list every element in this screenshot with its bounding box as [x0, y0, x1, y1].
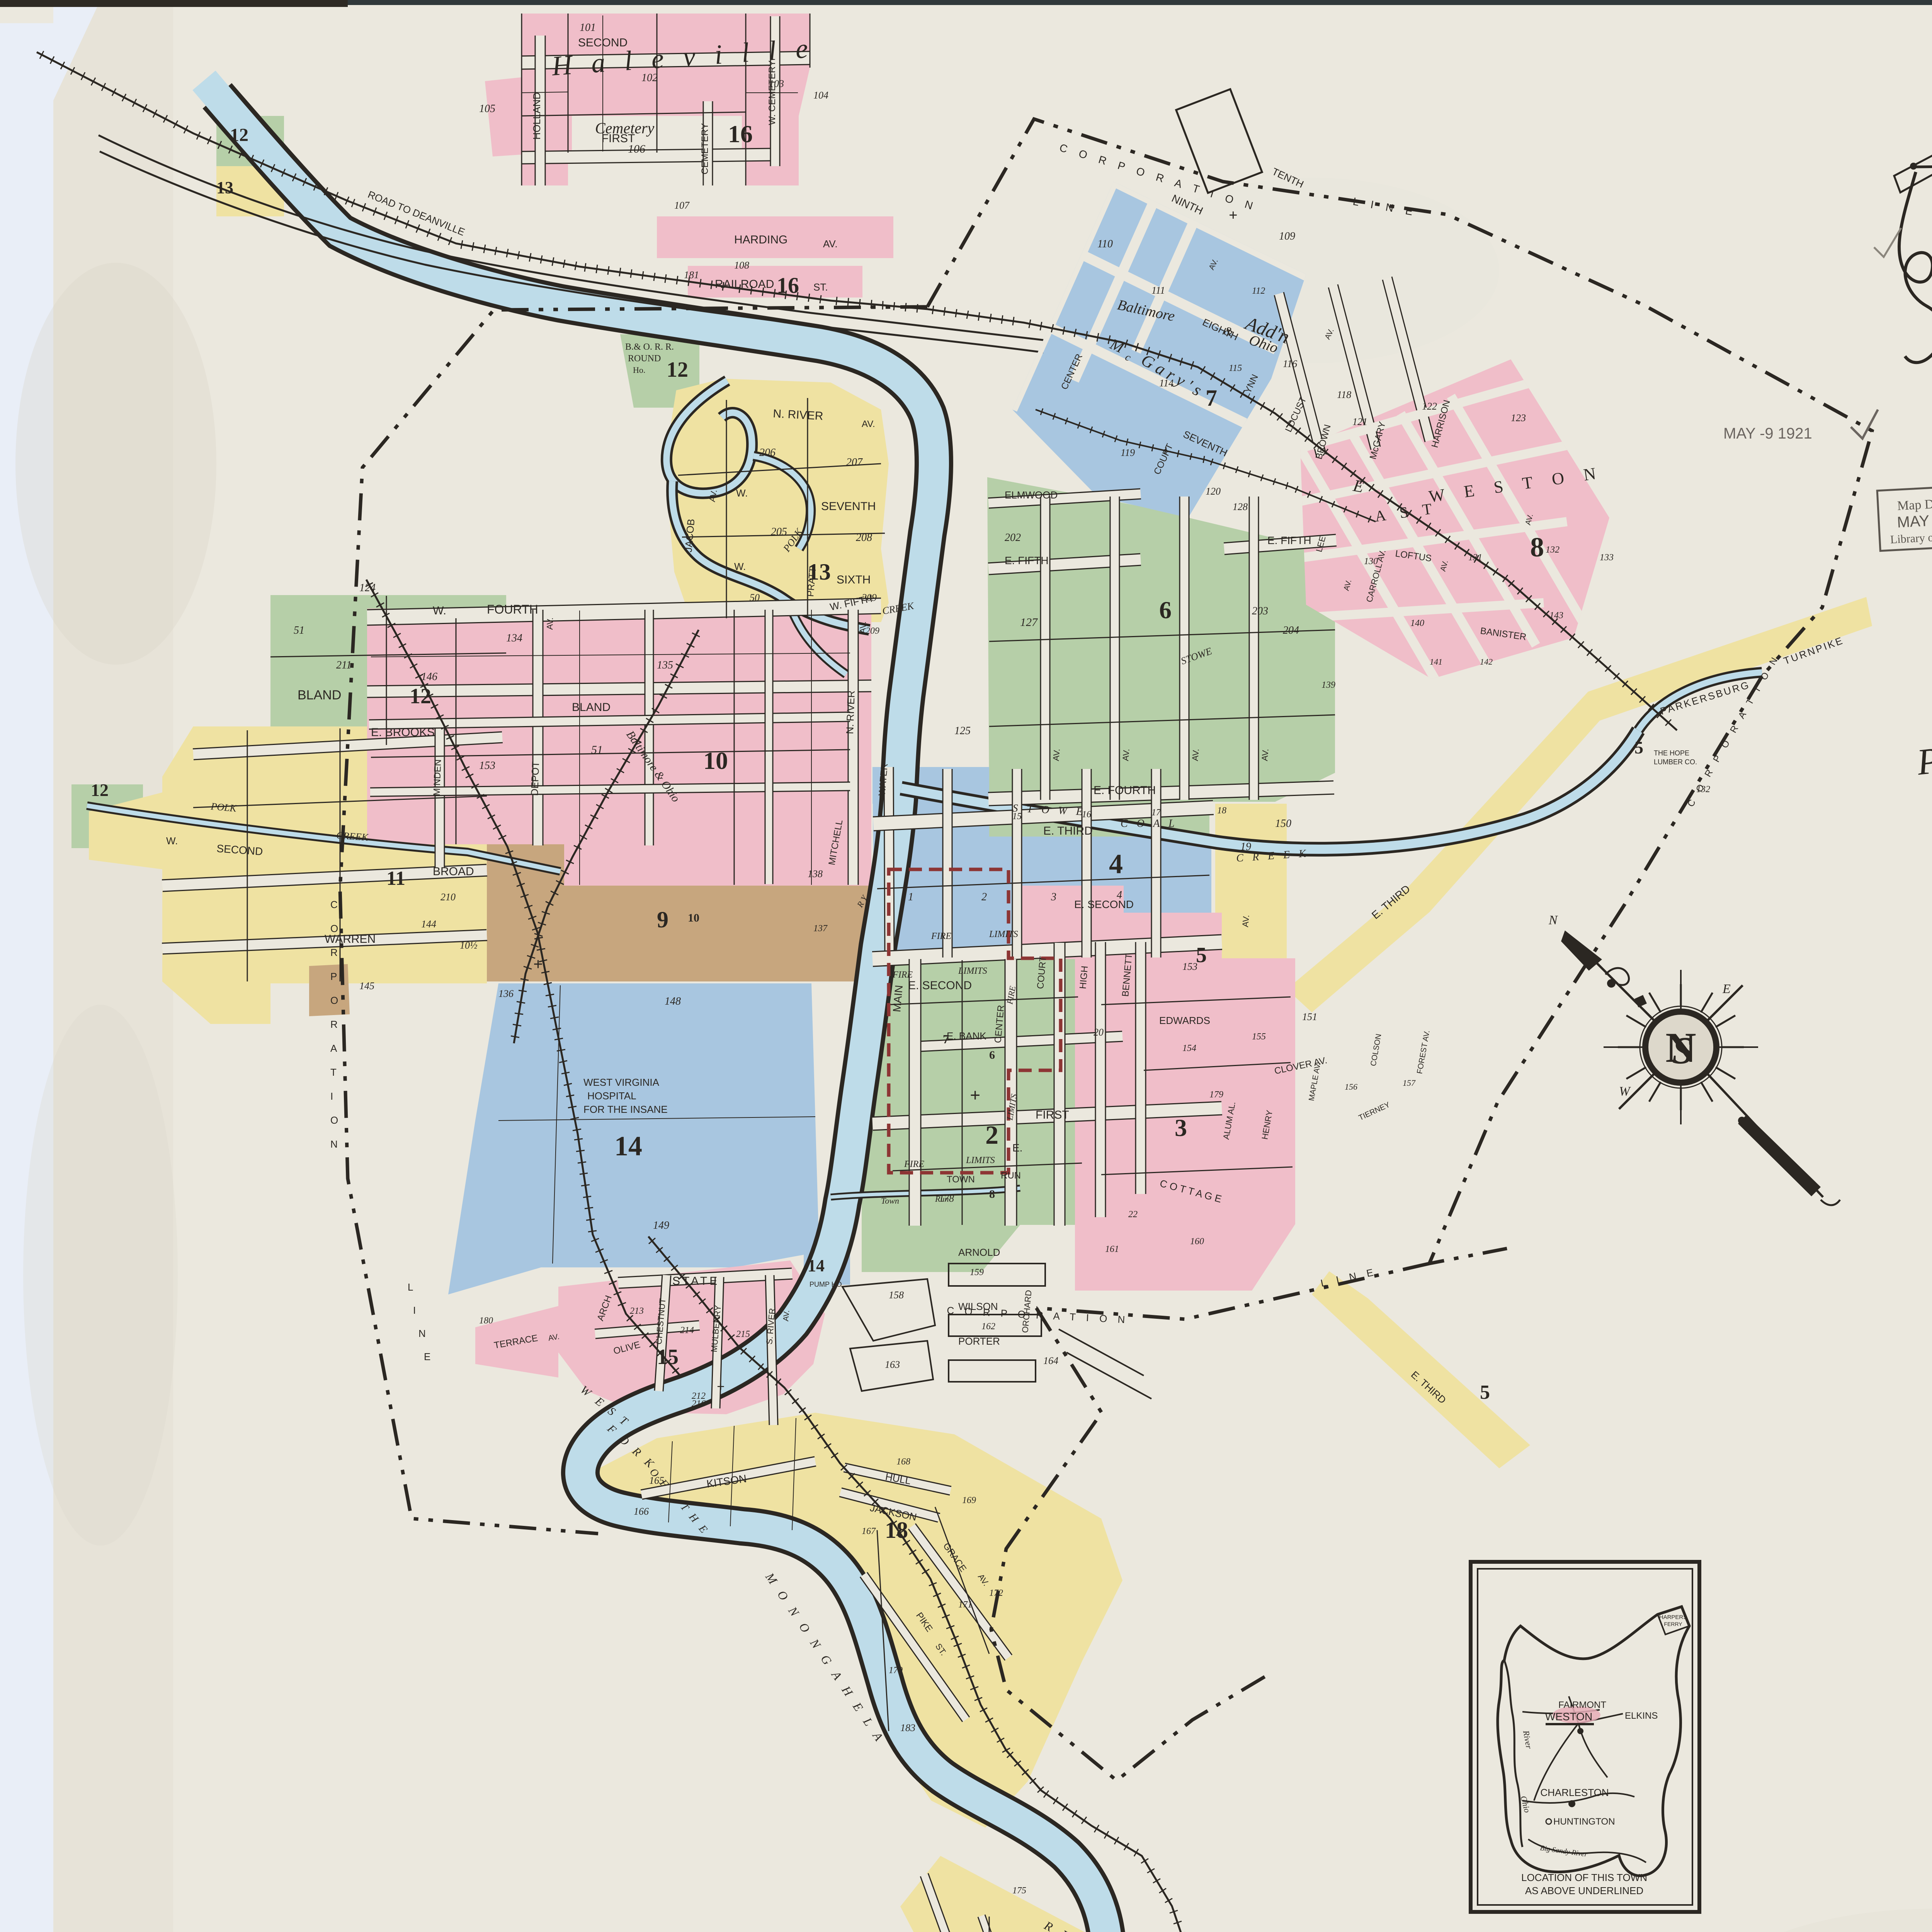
svg-text:115: 115	[1229, 363, 1242, 373]
svg-text:BLAND: BLAND	[298, 688, 341, 702]
svg-text:P: P	[330, 971, 337, 982]
svg-text:207: 207	[846, 456, 863, 468]
svg-text:E. SECOND: E. SECOND	[1074, 898, 1134, 910]
svg-text:ST.: ST.	[813, 281, 828, 293]
svg-text:206: 206	[759, 447, 776, 459]
svg-text:W. CEMETERY: W. CEMETERY	[767, 60, 777, 125]
svg-text:12: 12	[410, 684, 431, 708]
svg-text:N. RIVER: N. RIVER	[773, 407, 824, 423]
svg-text:I: I	[413, 1304, 416, 1316]
svg-text:W.: W.	[734, 561, 746, 572]
svg-text:AS ABOVE UNDERLINED: AS ABOVE UNDERLINED	[1525, 1885, 1643, 1896]
svg-text:19: 19	[1240, 841, 1251, 853]
svg-text:143: 143	[1549, 611, 1563, 621]
svg-text:FOURTH: FOURTH	[487, 602, 538, 616]
svg-text:101: 101	[580, 22, 596, 34]
svg-text:180: 180	[479, 1316, 493, 1326]
svg-text:3: 3	[1175, 1114, 1187, 1141]
svg-text:8: 8	[1530, 532, 1544, 563]
svg-text:AV.: AV.	[782, 1310, 791, 1322]
svg-text:HUNTINGTON: HUNTINGTON	[1553, 1816, 1615, 1827]
svg-text:172: 172	[989, 1588, 1003, 1598]
svg-text:SECOND: SECOND	[578, 36, 628, 49]
svg-text:148: 148	[665, 995, 681, 1007]
svg-text:16: 16	[728, 120, 753, 148]
svg-text:AV.: AV.	[1260, 748, 1270, 762]
svg-text:N: N	[418, 1328, 426, 1339]
svg-text:Run: Run	[935, 1194, 949, 1204]
svg-text:158: 158	[889, 1289, 904, 1301]
svg-text:163: 163	[885, 1359, 900, 1370]
svg-text:E. THIRD: E. THIRD	[1043, 825, 1093, 837]
svg-text:T: T	[330, 1066, 337, 1078]
svg-text:PORTER: PORTER	[958, 1335, 1000, 1347]
svg-text:FAIRMONT: FAIRMONT	[1558, 1700, 1606, 1710]
svg-text:116: 116	[1283, 358, 1297, 369]
svg-text:215: 215	[736, 1329, 750, 1339]
svg-text:133: 133	[1600, 553, 1614, 563]
svg-text:175: 175	[1012, 1886, 1026, 1896]
svg-text:STATE: STATE	[672, 1275, 719, 1287]
svg-text:HARPERS: HARPERS	[1659, 1614, 1687, 1621]
svg-text:6: 6	[1159, 596, 1172, 624]
svg-text:213: 213	[630, 1306, 644, 1316]
svg-text:CREEK: CREEK	[336, 830, 369, 843]
svg-text:164: 164	[1043, 1355, 1058, 1366]
svg-text:6: 6	[989, 1049, 995, 1061]
svg-text:FIRE: FIRE	[892, 970, 913, 980]
svg-text:+: +	[533, 955, 543, 974]
svg-text:DEPOT: DEPOT	[529, 761, 541, 796]
svg-text:208: 208	[856, 532, 872, 544]
svg-text:+: +	[717, 1379, 725, 1394]
svg-text:AV.: AV.	[1190, 748, 1201, 762]
svg-text:N: N	[330, 1138, 338, 1150]
svg-text:E: E	[424, 1351, 430, 1362]
svg-text:107: 107	[674, 200, 690, 211]
svg-text:AV.: AV.	[1240, 915, 1251, 928]
svg-text:151: 151	[1302, 1011, 1317, 1022]
svg-text:214: 214	[680, 1325, 694, 1335]
svg-text:W: W	[1619, 1084, 1631, 1099]
svg-text:E. FOURTH: E. FOURTH	[1094, 784, 1156, 797]
svg-text:137: 137	[813, 923, 828, 934]
svg-text:205: 205	[771, 526, 787, 538]
svg-text:THE HOPE: THE HOPE	[1654, 749, 1689, 757]
svg-text:128: 128	[1233, 501, 1248, 512]
svg-text:MAIN: MAIN	[891, 985, 905, 1012]
svg-text:141: 141	[1430, 657, 1442, 667]
svg-text:AV.: AV.	[1121, 748, 1131, 762]
svg-text:108: 108	[734, 260, 749, 271]
svg-text:I: I	[330, 1090, 333, 1102]
svg-text:AV.: AV.	[858, 621, 868, 634]
svg-text:155: 155	[1252, 1032, 1266, 1042]
svg-text:105: 105	[479, 103, 495, 115]
svg-text:138: 138	[808, 868, 823, 879]
svg-text:139: 139	[1321, 680, 1335, 690]
svg-text:102: 102	[641, 72, 658, 84]
svg-text:20: 20	[1094, 1027, 1104, 1038]
svg-text:R: R	[330, 1019, 338, 1030]
svg-text:HIGH: HIGH	[1078, 965, 1090, 989]
svg-text:202: 202	[1005, 532, 1021, 544]
svg-text:E.: E.	[1012, 1142, 1022, 1154]
svg-text:ARNOLD: ARNOLD	[958, 1247, 1000, 1258]
svg-text:135: 135	[657, 659, 673, 671]
svg-text:WEST VIRGINIA: WEST VIRGINIA	[583, 1077, 660, 1088]
svg-text:AV.: AV.	[862, 419, 875, 429]
svg-text:LUMBER CO.: LUMBER CO.	[1654, 758, 1697, 766]
svg-text:156: 156	[1345, 1082, 1357, 1092]
svg-text:5: 5	[1196, 943, 1207, 967]
svg-text:142: 142	[1480, 657, 1493, 667]
svg-text:12: 12	[230, 125, 248, 145]
svg-text:111: 111	[1151, 285, 1165, 296]
svg-text:FIRST: FIRST	[1036, 1109, 1069, 1121]
svg-text:134: 134	[506, 632, 522, 644]
svg-text:170: 170	[889, 1665, 903, 1675]
svg-text:C: C	[330, 899, 338, 910]
svg-text:E. BROOKS: E. BROOKS	[371, 726, 435, 739]
svg-text:2: 2	[981, 891, 987, 903]
svg-text:16: 16	[777, 273, 799, 298]
svg-text:LIMITS: LIMITS	[989, 929, 1018, 939]
svg-text:N. RIVER: N. RIVER	[844, 690, 857, 735]
svg-text:CHARLESTON: CHARLESTON	[1540, 1787, 1609, 1798]
svg-text:11: 11	[386, 867, 405, 889]
svg-text:22: 22	[1128, 1209, 1138, 1219]
svg-text:HOSPITAL: HOSPITAL	[587, 1090, 636, 1102]
svg-text:132: 132	[1696, 784, 1710, 794]
svg-text:O: O	[330, 1114, 338, 1126]
svg-text:PUMP HO.: PUMP HO.	[810, 1281, 844, 1288]
svg-text:SEVENTH: SEVENTH	[821, 500, 876, 513]
svg-text:EDWARDS: EDWARDS	[1159, 1015, 1210, 1026]
svg-text:AV.: AV.	[1051, 748, 1062, 762]
svg-text:171: 171	[958, 1600, 972, 1610]
svg-text:Town: Town	[881, 1196, 899, 1206]
svg-text:+: +	[1229, 206, 1238, 224]
svg-text:TOWN: TOWN	[947, 1174, 975, 1185]
svg-text:104: 104	[813, 90, 828, 101]
svg-text:LIMITS: LIMITS	[966, 1155, 995, 1165]
svg-text:CEMETERY: CEMETERY	[700, 123, 710, 175]
svg-text:109: 109	[1279, 230, 1295, 242]
svg-text:150: 150	[1275, 818, 1291, 830]
svg-text:210: 210	[440, 891, 456, 903]
svg-text:204: 204	[1283, 624, 1299, 636]
svg-text:157: 157	[1403, 1078, 1416, 1088]
svg-text:LIMITS: LIMITS	[958, 966, 987, 976]
svg-text:50: 50	[750, 592, 760, 603]
svg-text:POLK: POLK	[210, 801, 237, 814]
svg-text:166: 166	[634, 1506, 649, 1517]
svg-text:18: 18	[1217, 806, 1226, 816]
svg-text:168: 168	[896, 1457, 910, 1467]
svg-text:2: 2	[985, 1120, 998, 1150]
svg-text:136: 136	[498, 988, 514, 999]
svg-text:O: O	[330, 923, 338, 934]
svg-text:167: 167	[862, 1526, 876, 1536]
svg-text:W.: W.	[736, 487, 748, 499]
svg-text:ELKINS: ELKINS	[1625, 1711, 1658, 1721]
svg-text:7: 7	[1206, 385, 1217, 411]
svg-text:SIXTH: SIXTH	[837, 573, 871, 586]
svg-text:8: 8	[989, 1188, 995, 1201]
svg-text:146: 146	[421, 671, 437, 683]
svg-text:127: 127	[1020, 616, 1038, 629]
svg-text:131: 131	[1468, 553, 1482, 563]
svg-text:WILSON: WILSON	[958, 1301, 998, 1312]
svg-text:203: 203	[1252, 605, 1268, 617]
svg-text:159: 159	[970, 1267, 984, 1277]
svg-text:51: 51	[294, 624, 304, 636]
svg-text:+: +	[970, 1085, 980, 1105]
svg-text:140: 140	[1410, 618, 1424, 628]
svg-text:C O A L: C O A L	[1121, 818, 1178, 830]
svg-text:13: 13	[216, 178, 233, 197]
svg-text:E. BANK: E. BANK	[947, 1030, 986, 1042]
svg-text:216: 216	[692, 1399, 706, 1409]
svg-text:E: E	[1722, 982, 1731, 996]
svg-text:HARDING: HARDING	[734, 233, 787, 246]
svg-text:S: S	[1672, 1029, 1694, 1072]
svg-text:15: 15	[657, 1345, 679, 1369]
svg-text:125: 125	[954, 725, 971, 737]
svg-text:153: 153	[1182, 961, 1197, 972]
svg-text:153: 153	[479, 760, 495, 772]
svg-text:183: 183	[900, 1722, 915, 1733]
svg-text:A: A	[330, 1043, 337, 1054]
svg-text:122: 122	[1422, 401, 1437, 412]
svg-text:18: 18	[885, 1517, 908, 1543]
svg-text:10: 10	[703, 747, 728, 774]
svg-text:BLAND: BLAND	[572, 701, 611, 714]
svg-text:181: 181	[684, 269, 699, 281]
svg-text:HOLLAND: HOLLAND	[531, 92, 543, 140]
svg-text:3: 3	[1051, 891, 1056, 903]
svg-text:L: L	[408, 1281, 413, 1293]
svg-text:154: 154	[1182, 1043, 1196, 1053]
svg-text:E. FIFTH: E. FIFTH	[1267, 534, 1311, 546]
svg-text:118: 118	[1337, 389, 1351, 400]
svg-text:51: 51	[591, 743, 603, 756]
svg-text:W.: W.	[433, 604, 446, 617]
svg-text:Ho.: Ho.	[633, 365, 645, 375]
svg-text:ELMWOOD: ELMWOOD	[1005, 489, 1058, 501]
svg-text:149: 149	[653, 1219, 669, 1231]
svg-text:5: 5	[1480, 1381, 1490, 1403]
svg-text:162: 162	[981, 1321, 995, 1332]
svg-text:10½: 10½	[460, 940, 478, 951]
svg-text:9: 9	[657, 907, 668, 932]
svg-text:12: 12	[667, 358, 688, 382]
svg-text:110: 110	[1097, 238, 1113, 250]
svg-text:RUN: RUN	[1001, 1170, 1021, 1181]
svg-text:FIRE: FIRE	[931, 931, 951, 941]
svg-text:10: 10	[688, 912, 699, 924]
svg-text:FIRE: FIRE	[904, 1159, 924, 1169]
svg-text:123: 123	[1511, 412, 1526, 423]
svg-text:W.: W.	[166, 835, 178, 847]
svg-text:124: 124	[359, 582, 376, 594]
svg-text:AV.: AV.	[823, 238, 838, 250]
svg-text:119: 119	[1121, 447, 1135, 458]
svg-text:12: 12	[91, 780, 109, 800]
svg-text:N: N	[1548, 913, 1558, 927]
svg-text:121: 121	[1352, 416, 1367, 427]
svg-text:FERRY: FERRY	[1664, 1621, 1682, 1627]
svg-text:AV.: AV.	[545, 617, 555, 630]
svg-text:4: 4	[1109, 849, 1123, 879]
svg-text:120: 120	[1206, 486, 1221, 497]
svg-text:RAILROAD: RAILROAD	[715, 278, 774, 291]
svg-text:14: 14	[614, 1131, 642, 1162]
svg-text:144: 144	[421, 918, 436, 930]
svg-text:O: O	[330, 995, 338, 1006]
svg-text:E. SECOND: E. SECOND	[908, 979, 972, 992]
svg-text:160: 160	[1190, 1236, 1204, 1247]
svg-text:179: 179	[1209, 1090, 1223, 1100]
svg-text:E. FIFTH: E. FIFTH	[1005, 554, 1049, 566]
svg-text:132: 132	[1546, 545, 1560, 555]
svg-text:161: 161	[1105, 1244, 1119, 1254]
svg-text:106: 106	[628, 143, 645, 155]
svg-text:17: 17	[1151, 808, 1161, 818]
svg-text:R: R	[330, 947, 338, 958]
svg-text:114: 114	[1159, 378, 1173, 389]
svg-text:1: 1	[908, 891, 913, 903]
svg-text:211: 211	[336, 659, 352, 671]
svg-text:169: 169	[962, 1495, 976, 1505]
svg-text:145: 145	[359, 980, 374, 992]
svg-text:LOCATION OF THIS TOWN: LOCATION OF THIS TOWN	[1521, 1872, 1647, 1883]
svg-text:BROAD: BROAD	[433, 865, 474, 878]
svg-text:Cemetery: Cemetery	[595, 119, 655, 137]
svg-text:5: 5	[1634, 738, 1643, 757]
svg-text:WARREN: WARREN	[325, 933, 376, 946]
svg-text:ROUND: ROUND	[628, 354, 661, 364]
svg-text:14: 14	[808, 1256, 825, 1275]
svg-text:112: 112	[1252, 286, 1265, 296]
svg-text:WESTON: WESTON	[1545, 1711, 1592, 1723]
svg-text:MAY -9 1921: MAY -9 1921	[1723, 425, 1812, 442]
svg-text:103: 103	[769, 78, 784, 89]
svg-text:MINDEN: MINDEN	[432, 759, 443, 796]
svg-text:FOR THE INSANE: FOR THE INSANE	[583, 1104, 668, 1115]
svg-text:B.& O. R. R.: B.& O. R. R.	[625, 342, 674, 352]
